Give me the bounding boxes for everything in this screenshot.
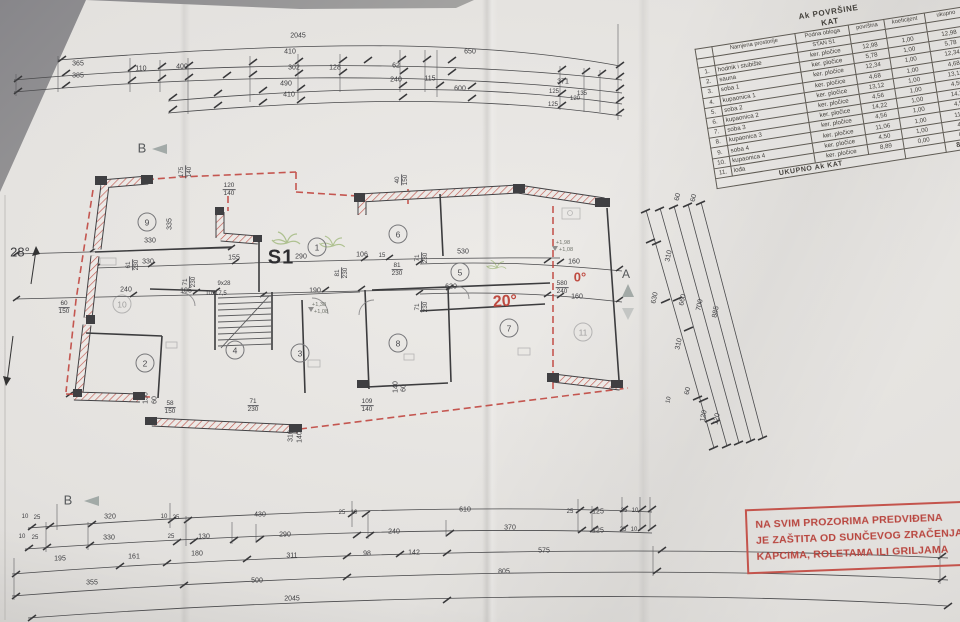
dim-label: 10 (665, 396, 672, 404)
table-title-line2: KAT (820, 16, 839, 28)
dim-label: 240 (120, 287, 132, 294)
dim-label: 490 (280, 81, 292, 88)
dim-label: 230 (392, 271, 403, 278)
room-number: 7 (500, 319, 519, 338)
room-number: 4 (226, 341, 245, 360)
dim-label: 155 (228, 255, 240, 262)
dim-label: 410 (283, 92, 295, 99)
dim-label: 142 (408, 550, 420, 557)
dim-label: 240 (556, 289, 569, 296)
roof-slope-left-label: 28° (10, 245, 30, 260)
dim-label: 330 (144, 238, 156, 245)
dim-fraction: 175140 (178, 166, 194, 179)
dim-label: 140 (393, 381, 400, 393)
dim-label: 10 (351, 510, 358, 516)
dim-fraction: 71230 (248, 398, 259, 414)
dim-label: 10 (19, 534, 26, 540)
stair-note: 10x17,5 (205, 291, 226, 297)
dim-fraction: 120140 (223, 182, 236, 198)
dim-label: 700 (695, 299, 704, 312)
stair-note: 9x28 (217, 281, 230, 287)
dim-fraction: 61230 (125, 260, 141, 271)
dim-label: 15 (379, 253, 386, 259)
dim-label: 175 (178, 166, 186, 179)
section-a-label: A (622, 267, 630, 281)
dim-fraction: 60150 (59, 300, 70, 316)
dim-label: 610 (459, 507, 471, 514)
dim-label: 180 (191, 551, 203, 558)
room-number: 10 (113, 295, 132, 314)
dim-label: 10 (631, 527, 638, 533)
level-label: +1,08 (559, 247, 573, 253)
dim-label: 140 (223, 191, 236, 198)
dim-label: 40 (394, 175, 402, 186)
dim-label: 150 (403, 175, 410, 186)
dim-label: 25 (620, 527, 627, 533)
dim-fraction: 40150 (394, 175, 410, 186)
room-number: 8 (389, 334, 408, 353)
room-number: 3 (291, 344, 310, 363)
dim-label: 240 (388, 529, 400, 536)
dim-label: 2045 (284, 596, 300, 603)
dim-label: 335 (167, 218, 174, 230)
dim-label: 575 (538, 548, 550, 555)
room-number: 1 (308, 238, 327, 257)
level-label: +1,38 (312, 302, 326, 308)
dim-label: 290 (279, 532, 291, 539)
dim-label: 530 (457, 249, 469, 256)
dim-label: 106 (356, 252, 368, 259)
dim-label: 10 (161, 514, 168, 520)
room-number: 11 (574, 323, 593, 342)
dim-label: 71 (414, 253, 422, 264)
dim-fraction: 81230 (392, 262, 403, 278)
dim-label: 105 (180, 288, 192, 295)
dim-label: 71 (182, 277, 190, 288)
dim-label: 25 (173, 515, 180, 521)
dim-label: 630 (650, 292, 659, 305)
dim-label: 230 (343, 268, 350, 279)
dim-label: 140 (187, 166, 194, 179)
dim-label: 330 (142, 259, 154, 266)
dim-label: 120 (712, 413, 721, 426)
dim-fraction: 71230 (414, 253, 430, 264)
dim-label: 125 (549, 89, 559, 95)
dim-label: 400 (176, 64, 188, 71)
dim-label: 120 (699, 410, 708, 423)
sun-protection-stamp: NA SVIM PROZORIMA PREDVIĐENA JE ZAŠTITA … (745, 501, 960, 575)
room-number: 2 (136, 354, 155, 373)
roof-slope-right-label: 20° (492, 292, 517, 312)
dim-label: 160 (568, 259, 580, 266)
dim-label: 355 (86, 580, 98, 587)
dim-fraction: 71230 (182, 277, 198, 288)
dim-label: 885 (711, 306, 720, 319)
dim-label: 140 (297, 431, 304, 443)
dim-label: 60 (674, 192, 682, 201)
dim-label: 71 (248, 398, 259, 406)
dim-label: 600 (454, 86, 466, 93)
dim-label: 365 (72, 61, 84, 68)
dim-label: 371 (557, 79, 569, 86)
dim-fraction: 71230 (414, 302, 430, 313)
roof-slope-flat-label: 0° (574, 270, 586, 285)
dim-label: 60 (59, 300, 70, 308)
dim-fraction: 81230 (334, 268, 350, 279)
dim-label: 805 (498, 569, 510, 576)
dim-label: 25 (34, 515, 41, 521)
dim-label: 110 (135, 66, 146, 73)
photo-of-drawing: 2045 410 650 365 385 110 400 302 128 62 … (0, 0, 960, 622)
room-number: 9 (138, 213, 157, 232)
dim-label: 128 (329, 65, 341, 72)
level-label: +1,08 (314, 309, 328, 315)
dim-label: 61 (125, 260, 133, 271)
dim-label: 290 (295, 254, 307, 261)
dim-label: 161 (128, 554, 140, 561)
dim-label: 71 (414, 302, 422, 313)
dim-fraction: 109140 (361, 398, 374, 414)
dim-label: 62 (392, 63, 400, 70)
dim-label: 2045 (290, 33, 306, 40)
dim-label: 580 (556, 280, 569, 288)
dim-label: 81 (392, 262, 403, 270)
dim-label: 150 (165, 409, 176, 416)
dim-label: 160 (571, 294, 583, 301)
dim-label: 385 (72, 73, 84, 80)
dim-label: 430 (254, 512, 266, 519)
dim-label: 130 (198, 534, 210, 541)
dim-label: 60 (401, 384, 408, 392)
dim-label: 310 (664, 250, 673, 263)
room-number: 5 (451, 263, 470, 282)
dim-label: 230 (423, 253, 430, 264)
dim-label: 98 (363, 551, 371, 558)
dim-label: 230 (423, 302, 430, 313)
dim-label: 500 (251, 578, 263, 585)
dim-label: 230 (191, 277, 198, 288)
dim-fraction: 58150 (165, 400, 176, 416)
floor-plan-sheet: 2045 410 650 365 385 110 400 302 128 62 … (0, 0, 960, 622)
dim-label: 58 (165, 400, 176, 408)
dim-label: 311 (286, 553, 297, 560)
dim-label: 25 (168, 534, 175, 540)
dim-label: 240 (390, 77, 402, 84)
room-number: 6 (389, 225, 408, 244)
dim-label: 310 (288, 430, 295, 442)
dim-label: 60 (690, 193, 698, 202)
dim-label: 25 (339, 510, 346, 516)
section-b-label-top: B (138, 141, 147, 156)
dim-label: 320 (104, 514, 116, 521)
dim-label: 150 (59, 309, 70, 316)
dim-label: 650 (464, 49, 476, 56)
section-b-label-bottom: B (64, 493, 73, 508)
dim-label: 190 (309, 288, 321, 295)
dim-label: 109 (361, 398, 374, 406)
dim-label: 140 (361, 407, 374, 414)
dim-label: 120 (570, 96, 580, 102)
dim-label: 125 (548, 102, 558, 108)
dim-label: 10 (632, 508, 639, 514)
dim-label: 125 (592, 509, 604, 516)
dim-label: 150 (143, 392, 150, 404)
dim-label: 302 (288, 65, 300, 72)
dim-label: 10 (22, 514, 29, 520)
dim-label: 660 (678, 294, 687, 307)
dim-label: 195 (54, 556, 66, 563)
dim-label: 410 (284, 49, 296, 56)
level-label: +1,98 (556, 240, 570, 246)
dim-label: 120 (223, 182, 236, 190)
dim-label: 125 (592, 528, 604, 535)
apartment-label: S1 (268, 247, 294, 270)
dim-label: 230 (134, 260, 141, 271)
dim-label: 60 (152, 396, 159, 404)
dim-label: 60 (684, 386, 692, 395)
dim-fraction: 580240 (556, 280, 569, 296)
dim-label: 25 (621, 508, 628, 514)
dim-label: 230 (248, 407, 259, 414)
dim-label: 370 (504, 525, 516, 532)
dim-label: 115 (424, 76, 435, 83)
dim-label: 81 (334, 268, 342, 279)
dim-label: 310 (674, 338, 683, 351)
dim-label: 25 (567, 509, 574, 515)
dim-label: 330 (103, 535, 115, 542)
dim-label: 25 (32, 535, 39, 541)
dim-label: 620 (445, 284, 457, 291)
